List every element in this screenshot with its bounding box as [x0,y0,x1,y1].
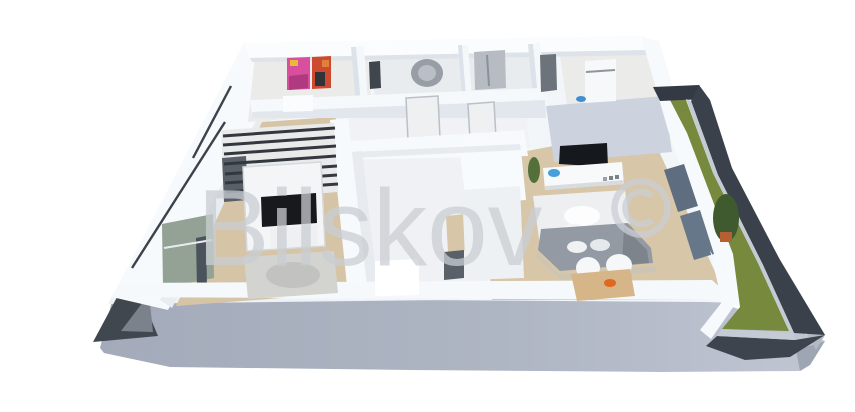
svg-text:Bilskov: Bilskov [197,167,543,289]
